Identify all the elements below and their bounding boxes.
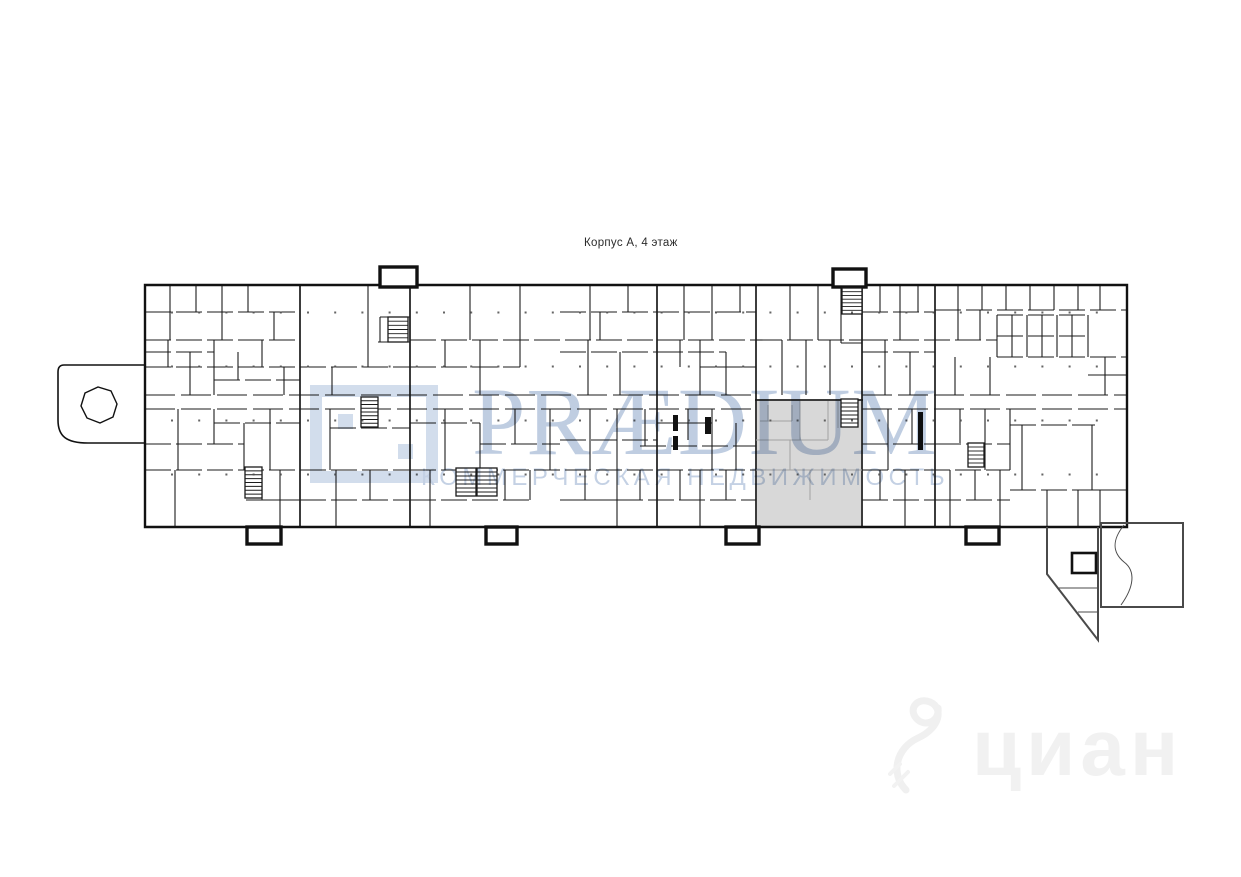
interior-walls: [145, 285, 1127, 527]
entrance-protrusions: [247, 267, 999, 544]
stairwells: [245, 288, 984, 498]
floor-plan-page: циан PRÆDIUM КОММЕРЧЕСКАЯ НЕДВИЖИМОСТЬ К…: [0, 0, 1241, 877]
column-grid-dots: [171, 312, 1098, 476]
floor-plan-drawing: [0, 0, 1241, 877]
building-outline: [58, 285, 1127, 527]
right-wing-extension: [1047, 523, 1183, 640]
